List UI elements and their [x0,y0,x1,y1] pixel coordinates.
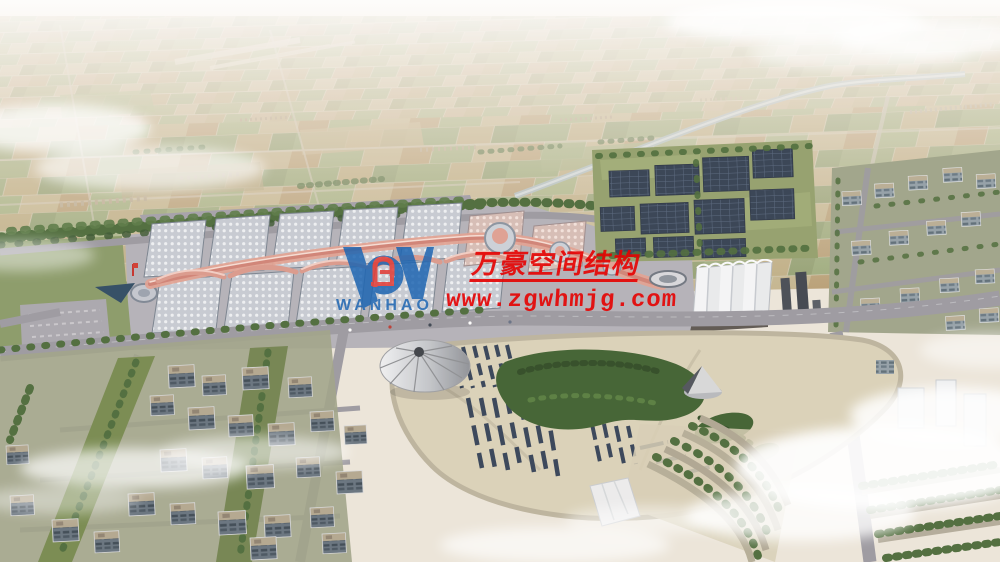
watermark-website-url: www.zgwhmjg.com [445,288,678,313]
watermark-company-name: 万豪空间结构 [469,250,643,282]
logo-wordmark: WANHAO [336,297,433,314]
aerial-render: WANHAO 万豪空间结构 www.zgwhmjg.com [0,0,1000,562]
